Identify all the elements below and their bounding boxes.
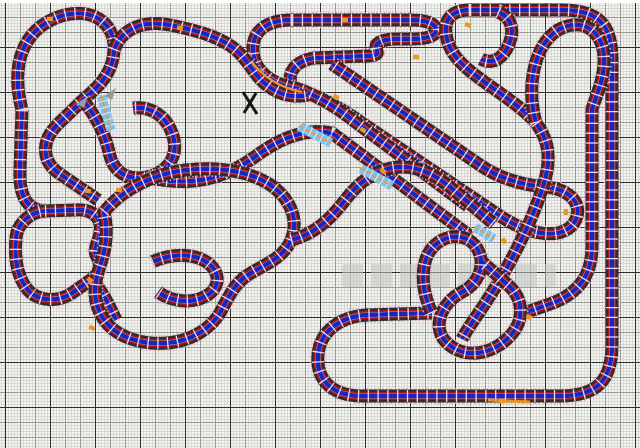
connector-marker <box>499 399 505 403</box>
connector-marker <box>464 22 471 28</box>
connector-marker <box>342 18 348 22</box>
connector-marker <box>47 17 53 21</box>
connector-marker <box>85 189 91 194</box>
connector-marker <box>88 325 95 332</box>
connector-marker <box>413 55 419 59</box>
connector-marker <box>564 209 568 215</box>
connector-marker <box>116 188 122 193</box>
connector-marker <box>501 237 508 244</box>
start-finish-cross <box>243 92 257 114</box>
lane-red <box>147 132 470 236</box>
direction-streak <box>488 400 530 402</box>
track-layout-drawing <box>0 0 640 448</box>
track-plan-canvas: Slot car racing track layout plan drawn … <box>0 0 640 448</box>
